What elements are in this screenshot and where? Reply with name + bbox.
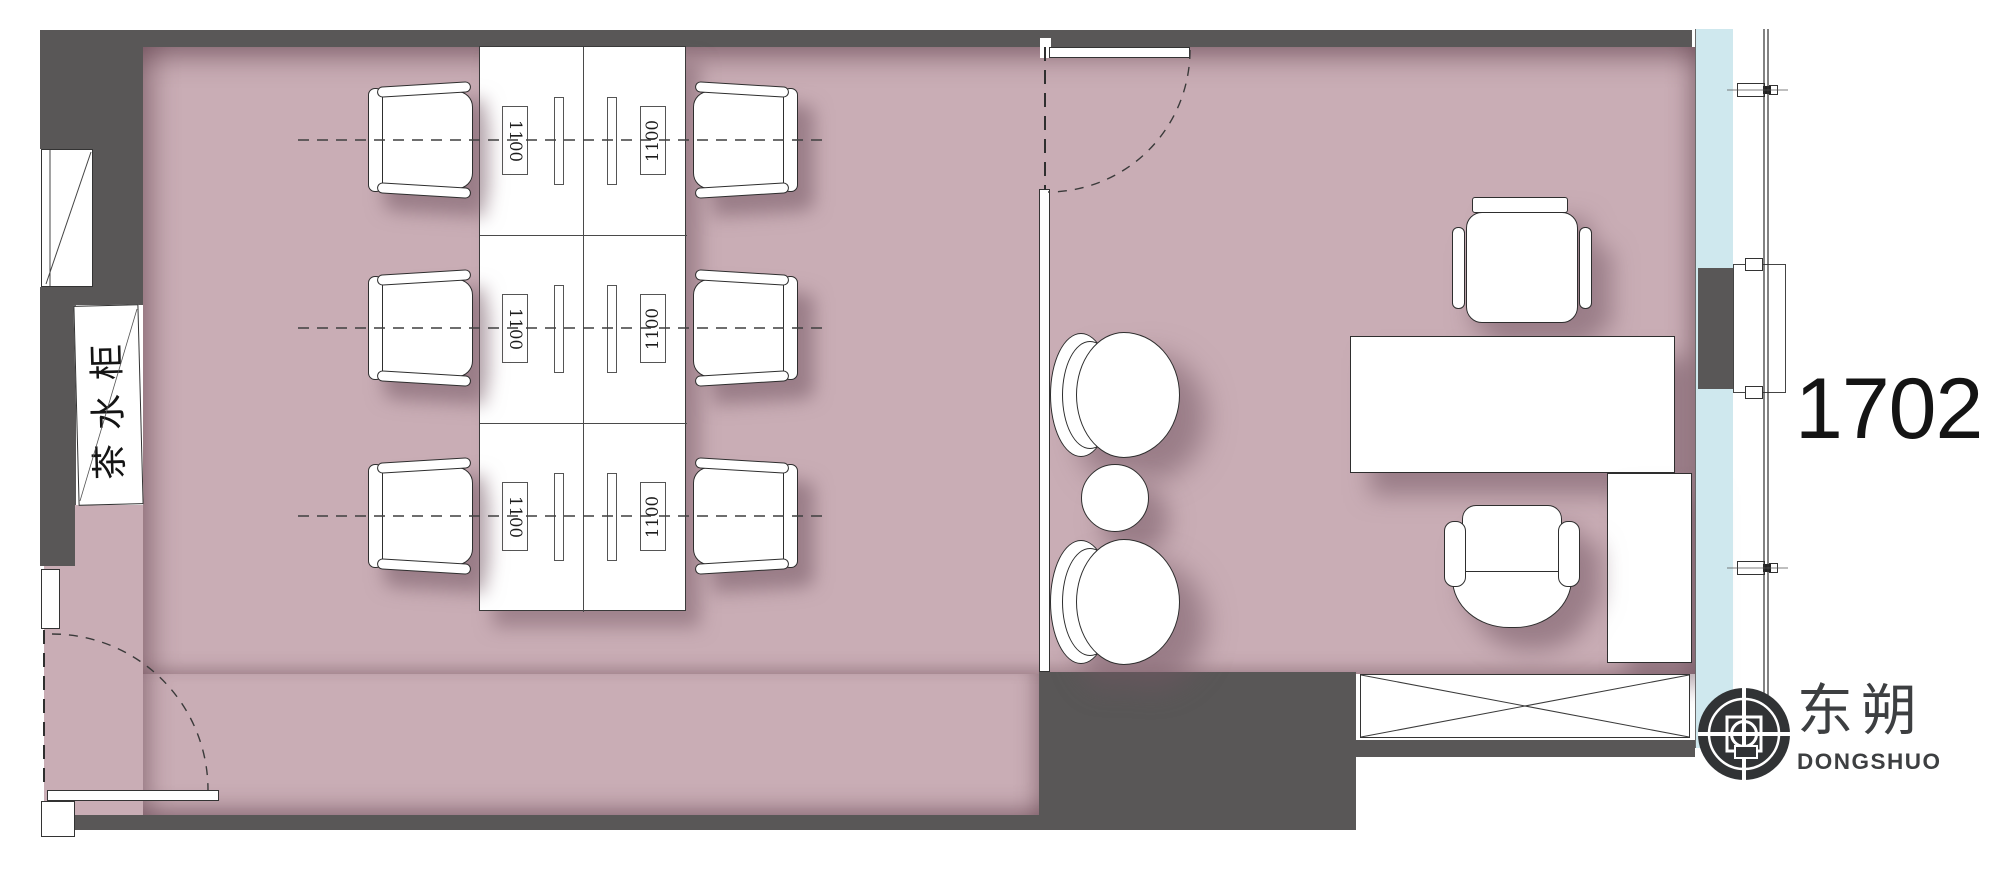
tea-cabinet-label: 茶水柜 xyxy=(73,304,143,506)
partition-wall xyxy=(1039,189,1050,672)
executive-desk xyxy=(1350,336,1675,473)
mullion-clamp xyxy=(1737,83,1765,97)
wall-left-mid xyxy=(40,287,143,305)
wall-left-lower xyxy=(40,505,75,566)
office-chair-guest xyxy=(1444,505,1580,630)
window-column xyxy=(1698,268,1733,389)
office-chair-executive xyxy=(1452,197,1592,325)
desk-divider-screen xyxy=(554,97,564,185)
desk-size-label: 1100 xyxy=(640,106,666,175)
table-column-divider xyxy=(583,47,584,612)
conference-chair xyxy=(692,87,798,193)
desk-size-label: 1100 xyxy=(640,482,666,551)
wall-left-beside-shaft xyxy=(93,149,143,287)
lounge-chair xyxy=(1050,537,1180,667)
wall-bottom-right xyxy=(1356,740,1695,757)
conference-chair xyxy=(692,463,798,569)
mullion-joint xyxy=(1763,86,1771,94)
credenza xyxy=(1360,674,1690,738)
wall-bottom-left xyxy=(75,815,1040,830)
desk-size-label: 1100 xyxy=(502,294,528,363)
table-row-divider xyxy=(480,235,687,236)
door-left-leaf xyxy=(47,790,219,801)
door-top-leaf xyxy=(1049,47,1190,58)
wall-left-beside-cabinet xyxy=(40,305,76,505)
wall-core-block xyxy=(1039,672,1356,830)
desk-divider-screen xyxy=(607,473,617,561)
logo-text-cn: 东朔 xyxy=(1797,684,1925,740)
window-sill-panel xyxy=(1733,264,1786,393)
mullion-clamp xyxy=(1737,741,1765,755)
desk-return xyxy=(1607,473,1692,663)
shaft-niche xyxy=(41,149,93,287)
door-left-sill xyxy=(41,801,75,837)
desk-size-label: 1100 xyxy=(502,482,528,551)
mullion-clamp xyxy=(1737,561,1765,575)
door-left-jamb xyxy=(41,569,60,629)
conference-chair xyxy=(692,275,798,381)
desk-size-label: 1100 xyxy=(502,106,528,175)
wall-top xyxy=(40,30,1692,47)
lounge-side-table xyxy=(1081,464,1149,532)
conference-chair xyxy=(368,463,474,569)
desk-divider-screen xyxy=(607,97,617,185)
mullion-joint xyxy=(1763,564,1771,572)
table-row-divider xyxy=(480,423,687,424)
lounge-chair xyxy=(1050,330,1180,460)
wall-left-upper xyxy=(40,30,143,149)
conference-chair xyxy=(368,275,474,381)
unit-number: 1702 xyxy=(1795,366,1982,452)
conference-table: 1100 1100 1100 1100 1100 1100 xyxy=(479,46,686,611)
floor-plan-canvas: 茶水柜 1100 1100 1100 1100 1100 1100 xyxy=(0,0,2000,873)
conference-chair xyxy=(368,87,474,193)
desk-divider-screen xyxy=(607,285,617,373)
logo-text-en: DONGSHUO xyxy=(1797,751,1942,774)
mullion-clamp xyxy=(1745,258,1763,271)
mullion-clamp xyxy=(1745,386,1763,399)
floor-left-room-lower xyxy=(143,674,1039,815)
desk-size-label: 1100 xyxy=(640,294,666,363)
desk-divider-screen xyxy=(554,473,564,561)
desk-divider-screen xyxy=(554,285,564,373)
tea-cabinet: 茶水柜 xyxy=(73,304,143,506)
